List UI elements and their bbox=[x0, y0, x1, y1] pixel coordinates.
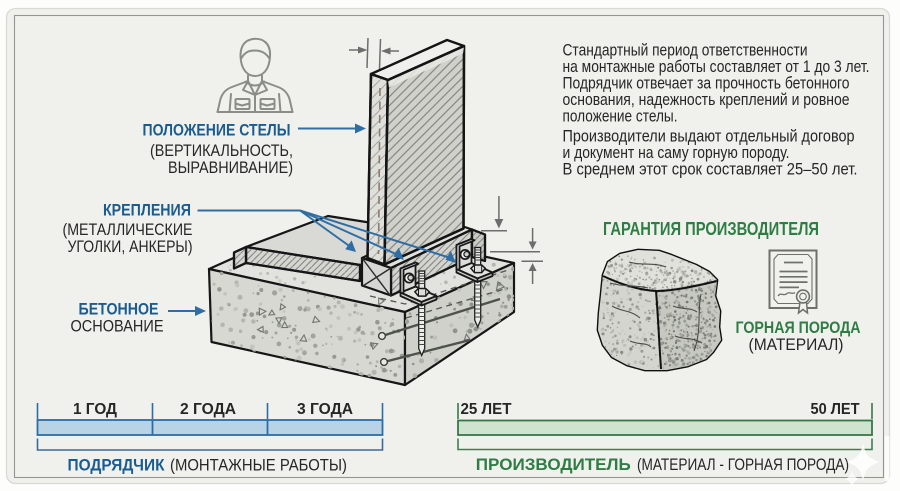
svg-text:положение стелы.: положение стелы. bbox=[563, 107, 678, 126]
svg-text:КРЕПЛЕНИЯ: КРЕПЛЕНИЯ bbox=[103, 201, 191, 220]
svg-text:ПОДРЯДЧИК: ПОДРЯДЧИК bbox=[68, 456, 166, 475]
svg-text:В среднем этот срок составляе: В среднем этот срок составляет 25–50 лет… bbox=[563, 160, 858, 179]
svg-text:ВЫРАВНИВАНИЕ): ВЫРАВНИВАНИЕ) bbox=[168, 158, 293, 177]
svg-text:ОСНОВАНИЕ: ОСНОВАНИЕ bbox=[71, 317, 164, 336]
svg-text:2 ГОДА: 2 ГОДА bbox=[180, 401, 236, 418]
svg-text:3 ГОДА: 3 ГОДА bbox=[297, 401, 353, 418]
svg-text:(МАТЕРИАЛ): (МАТЕРИАЛ) bbox=[749, 335, 844, 354]
svg-text:УГОЛКИ, АНКЕРЫ): УГОЛКИ, АНКЕРЫ) bbox=[68, 237, 193, 256]
svg-text:50 ЛЕТ: 50 ЛЕТ bbox=[811, 401, 860, 418]
svg-text:1 ГОД: 1 ГОД bbox=[73, 401, 117, 418]
svg-text:ПОЛОЖЕНИЕ СТЕЛЫ: ПОЛОЖЕНИЕ СТЕЛЫ bbox=[143, 121, 291, 140]
svg-text:ПРОИЗВОДИТЕЛЬ: ПРОИЗВОДИТЕЛЬ bbox=[476, 455, 631, 474]
svg-text:(МОНТАЖНЫЕ РАБОТЫ): (МОНТАЖНЫЕ РАБОТЫ) bbox=[170, 456, 347, 475]
svg-text:ГАРАНТИЯ ПРОИЗВОДИТЕЛЯ: ГАРАНТИЯ ПРОИЗВОДИТЕЛЯ bbox=[603, 219, 819, 239]
svg-text:(МАТЕРИАЛ - ГОРНАЯ ПОРОДА): (МАТЕРИАЛ - ГОРНАЯ ПОРОДА) bbox=[637, 455, 849, 474]
svg-text:25 ЛЕТ: 25 ЛЕТ bbox=[461, 401, 513, 418]
